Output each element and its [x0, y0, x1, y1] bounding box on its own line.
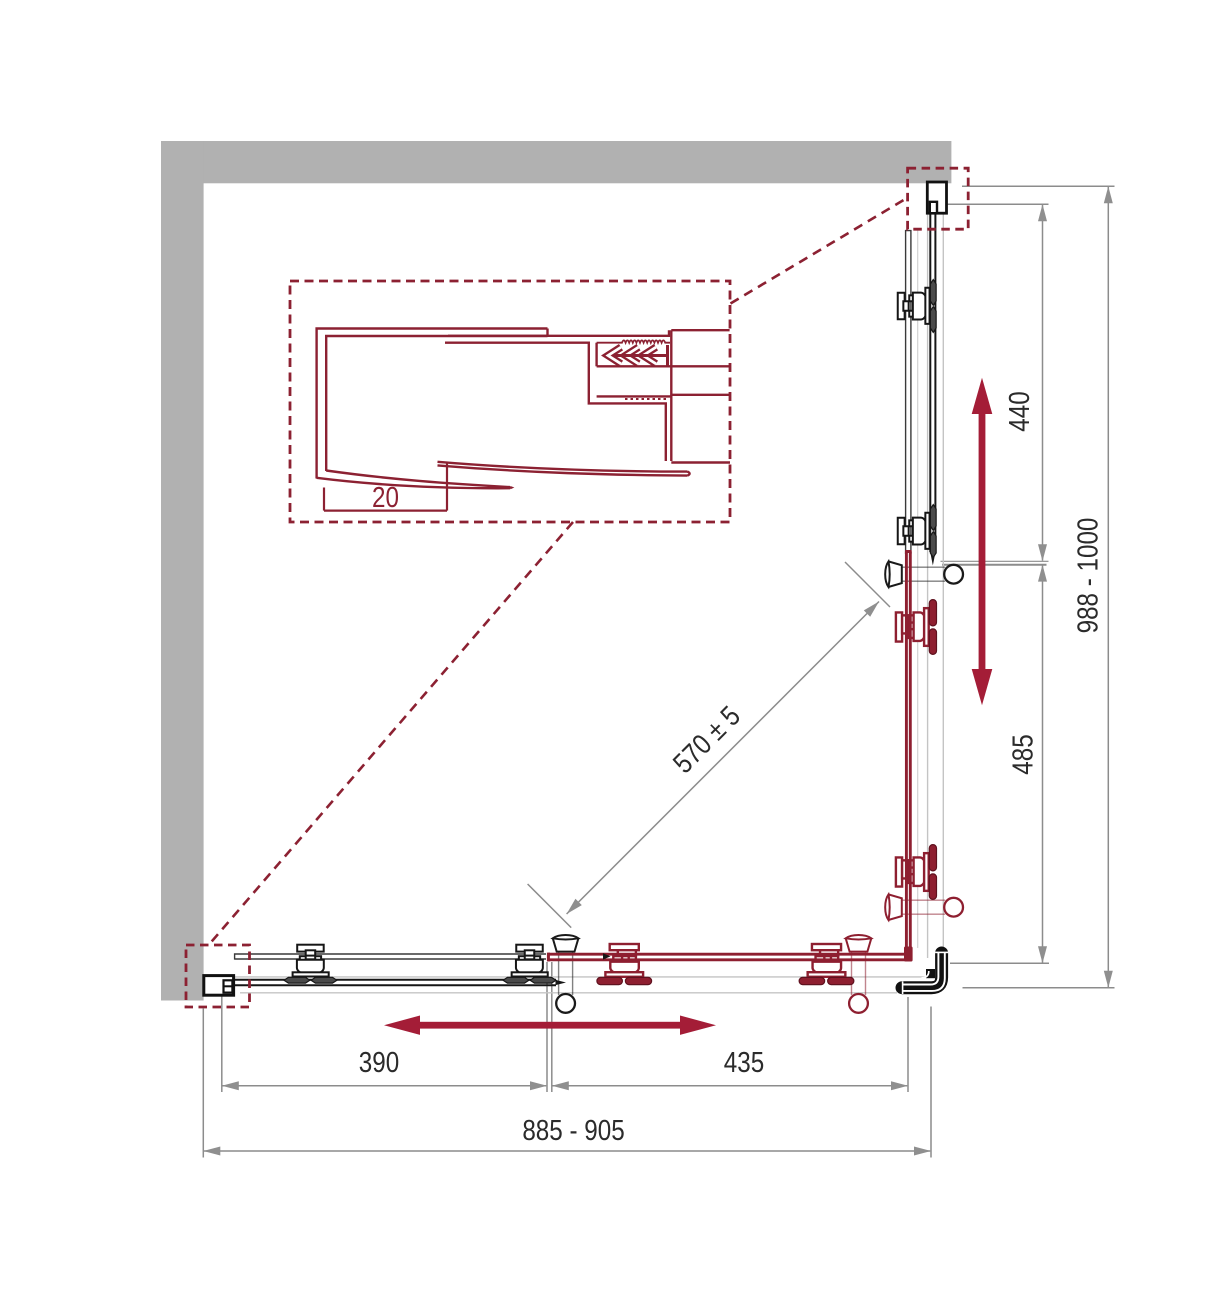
svg-text:485: 485: [1007, 734, 1039, 774]
svg-text:435: 435: [724, 1046, 764, 1078]
svg-text:988 - 1000: 988 - 1000: [1071, 518, 1103, 634]
svg-text:440: 440: [1003, 391, 1035, 431]
svg-text:20: 20: [372, 481, 399, 513]
svg-text:390: 390: [359, 1046, 399, 1078]
svg-text:885 - 905: 885 - 905: [522, 1114, 624, 1146]
